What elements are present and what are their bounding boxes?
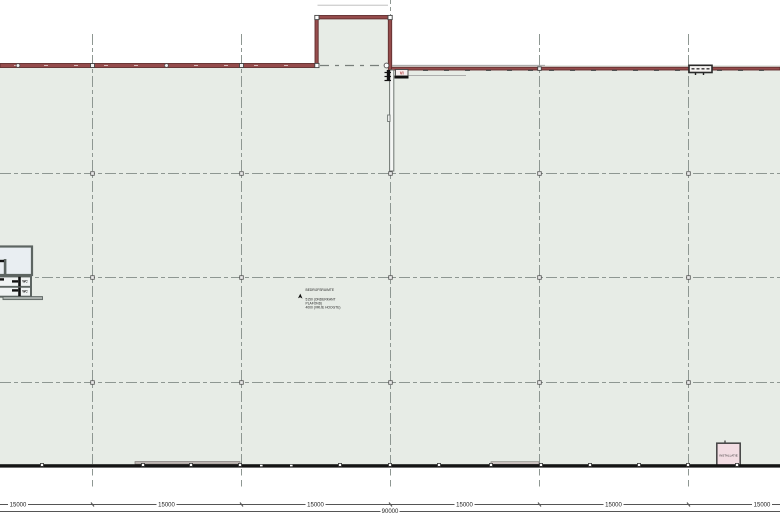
svg-text:4000 (VRIJE HOOGTE): 4000 (VRIJE HOOGTE)	[306, 306, 341, 310]
svg-text:INSTALLATIE: INSTALLATIE	[719, 454, 737, 458]
svg-text:15000: 15000	[754, 503, 771, 509]
svg-text:15000: 15000	[605, 503, 622, 509]
svg-text:15000: 15000	[158, 503, 175, 509]
svg-text:WC: WC	[22, 289, 28, 293]
svg-text:BEDRIJFSRUIMTE: BEDRIJFSRUIMTE	[306, 288, 335, 292]
svg-text:15000: 15000	[10, 503, 27, 509]
svg-text:15000: 15000	[456, 503, 473, 509]
svg-text:90000: 90000	[382, 509, 399, 515]
svg-text:WC: WC	[22, 280, 28, 284]
svg-text:VI: VI	[400, 71, 404, 76]
svg-text:15000: 15000	[307, 503, 324, 509]
